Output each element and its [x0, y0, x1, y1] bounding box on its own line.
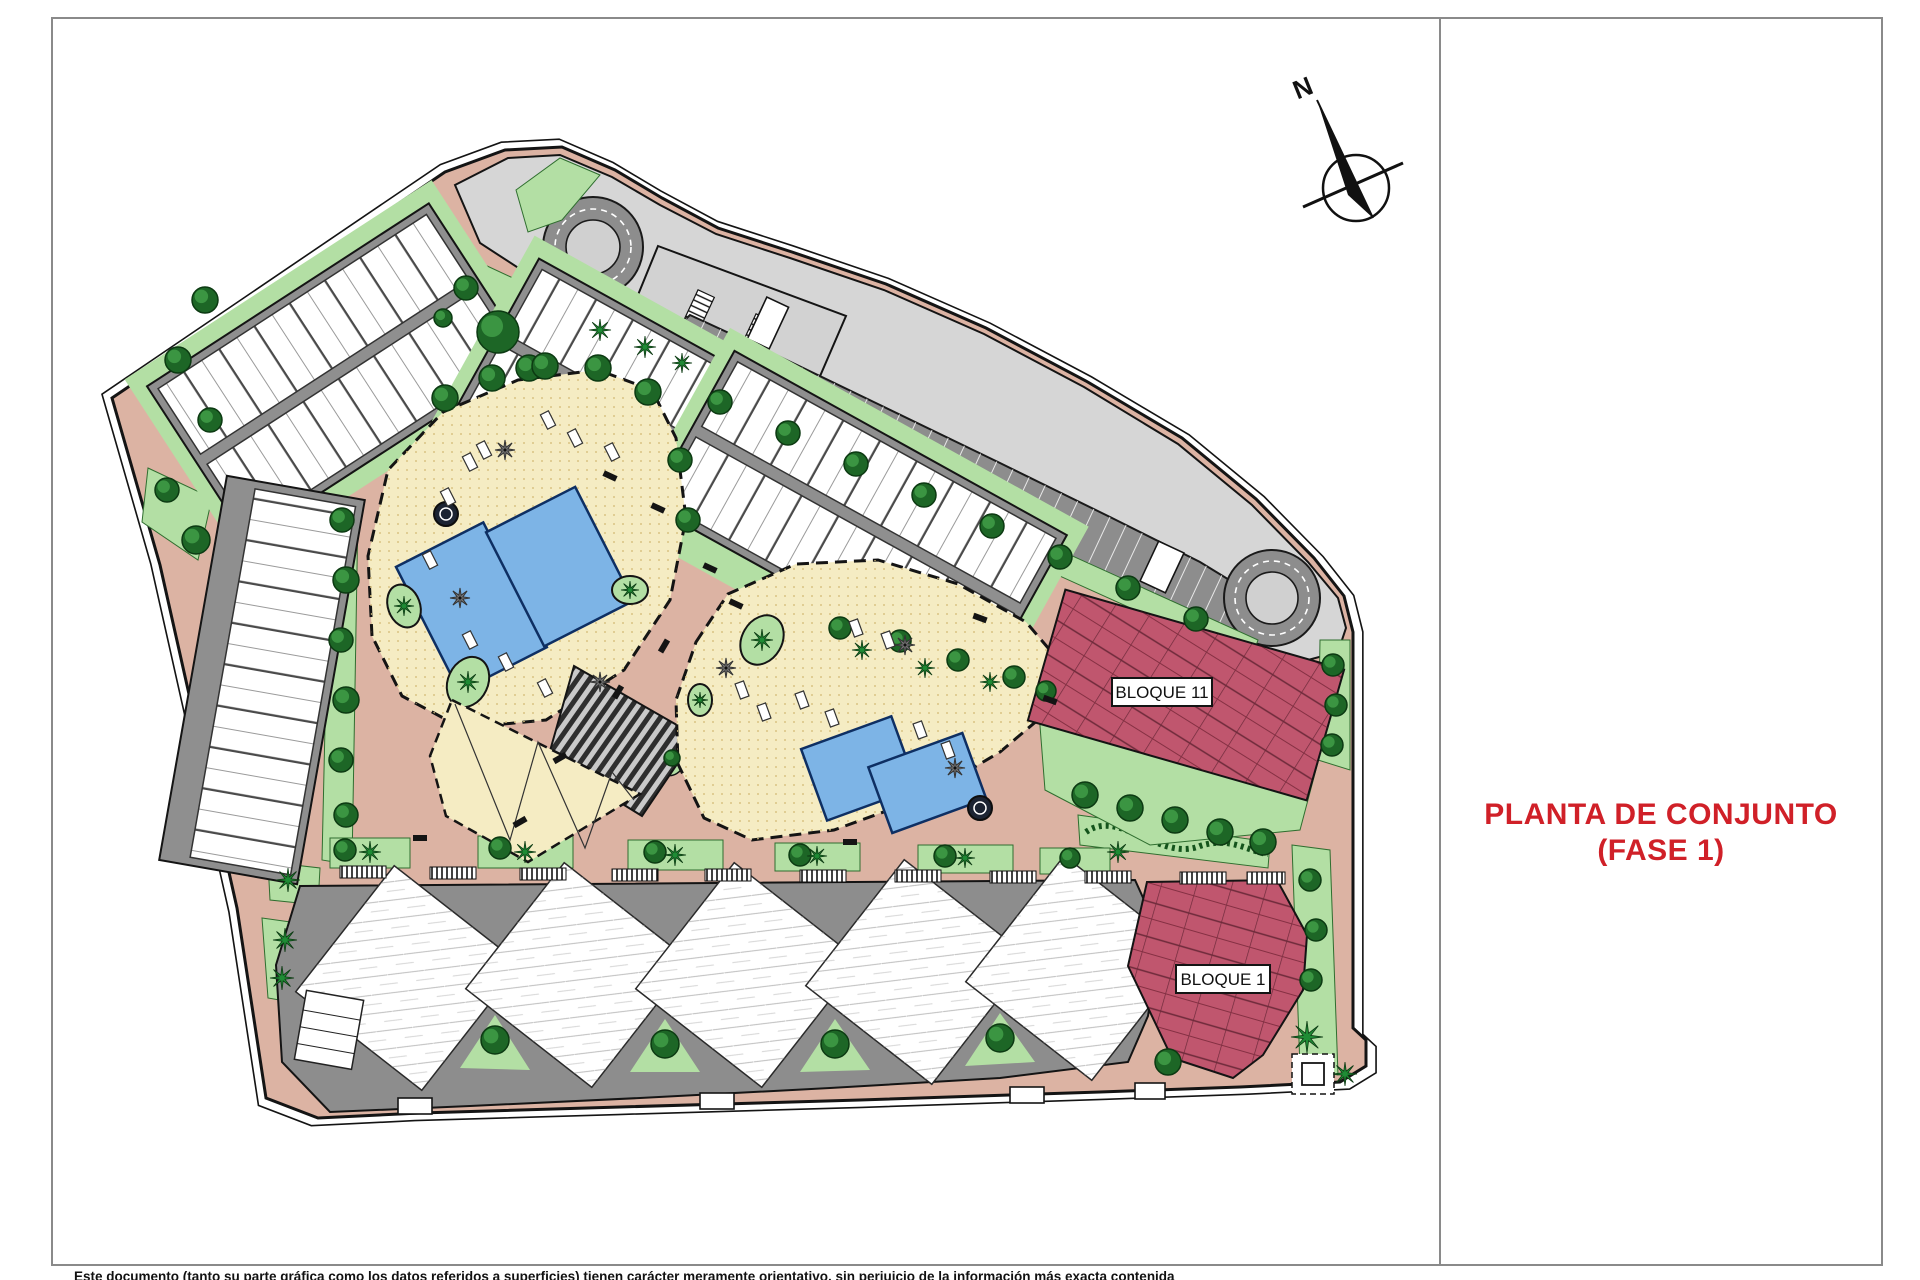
drawing-title-line2: (FASE 1) [1440, 833, 1882, 869]
jacuzzi-1 [434, 502, 458, 526]
site-plan-drawing: BLOQUE 11 BLOQUE 1 N [0, 0, 1920, 1280]
drawing-title-line1: PLANTA DE CONJUNTO [1440, 797, 1882, 833]
jacuzzi-2 [968, 796, 992, 820]
bloque-11-label: BLOQUE 11 [1115, 683, 1208, 702]
drawing-title: PLANTA DE CONJUNTO (FASE 1) [1440, 797, 1882, 869]
north-arrow: N [1288, 70, 1403, 221]
disclaimer-text: Este documento (tanto su parte gráfica c… [74, 1269, 1175, 1280]
bloque-1-label: BLOQUE 1 [1180, 970, 1265, 989]
north-letter: N [1288, 70, 1317, 105]
utility-enclosure [1292, 1054, 1334, 1094]
stair-core [294, 990, 363, 1069]
drawing-sheet: BLOQUE 11 BLOQUE 1 N PLANTA DE CONJUNTO … [0, 0, 1920, 1280]
